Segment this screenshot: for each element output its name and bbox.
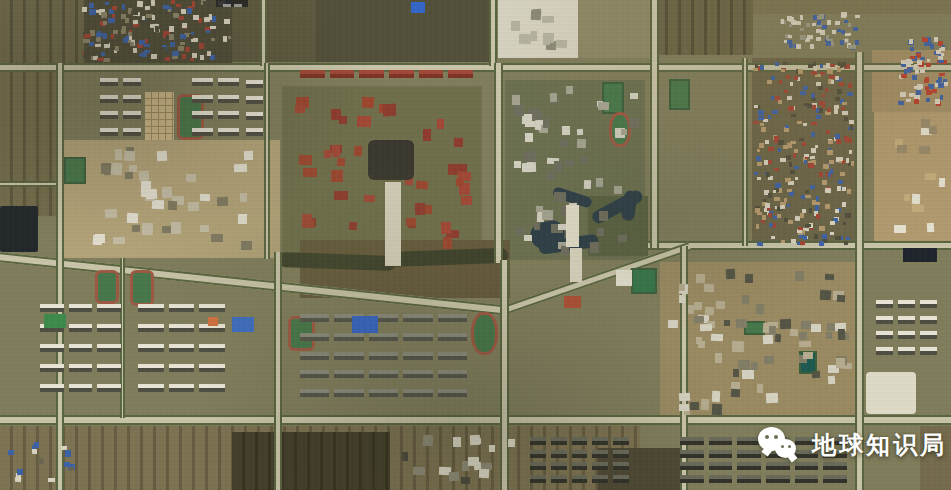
village-right-building: [773, 190, 776, 193]
village-right-building: [846, 158, 850, 163]
red-roof-campus-center-building: [303, 168, 317, 177]
campus-buildings-mid-left-building: [124, 150, 135, 161]
village-right-building: [805, 224, 811, 227]
village-right-building: [761, 220, 765, 223]
village-right-building: [839, 157, 843, 161]
village-right-building: [815, 206, 820, 211]
apartments-bottom-dark-b-slab: [737, 475, 761, 483]
buildings-bottom-center-building: [453, 437, 461, 447]
apartments-bottom-center-slab: [438, 333, 467, 341]
apartments-bottom-center-slab: [300, 370, 329, 378]
apartments-bottom-dark-a-slab: [592, 450, 608, 458]
village-top-left-building: [176, 4, 181, 7]
apartments-bottom-dark-a-slab: [613, 475, 629, 483]
campus-buildings-right-building: [795, 271, 804, 281]
apartments-bottom-left-a-slab: [97, 384, 121, 392]
village-right-building: [756, 156, 761, 161]
village-top-right-corner-building: [939, 60, 945, 63]
village-right-building: [767, 213, 771, 217]
village-right-building: [841, 201, 845, 206]
campus-buildings-right-building: [731, 388, 740, 397]
red-roof-campus-center-building: [364, 195, 376, 203]
apartments-bottom-dark-b-slab: [709, 437, 733, 445]
apartments-bottom-dark-a-slab: [592, 437, 608, 445]
village-top-right-corner-building: [910, 47, 914, 51]
apartments-bottom-dark-a-slab: [613, 450, 629, 458]
red-roof-campus-center-building: [437, 119, 445, 129]
village-top-left-building: [223, 36, 227, 42]
red-roof-campus-center-building: [416, 181, 428, 190]
red-roof-campus-center-building: [456, 177, 465, 186]
apartments-right-edge-slab: [898, 331, 915, 339]
campus-buildings-mid-left-building: [200, 193, 210, 201]
village-right-building: [774, 168, 779, 171]
campus-buildings-right-building: [735, 319, 746, 329]
apartments-bottom-dark-a-slab: [613, 437, 629, 445]
red-roof-campus-center-building: [422, 129, 430, 141]
apartments-top-left-a-slab: [123, 95, 141, 103]
campus-buildings-right-building: [757, 383, 763, 392]
village-right-building: [786, 96, 791, 100]
apartments-bottom-dark-a-slab: [551, 450, 567, 458]
village-top-right-blue-building: [848, 23, 852, 27]
apartments-top-left-a-slab: [100, 111, 118, 119]
campus-buildings-mid-left-building: [241, 241, 253, 250]
apartments-right-edge-slab: [876, 316, 893, 324]
village-top-left-building: [155, 26, 159, 32]
village-top-left-building: [103, 21, 107, 25]
campus-buildings-right-building: [811, 324, 821, 332]
village-right-building: [774, 136, 780, 141]
village-right-building: [844, 136, 849, 141]
campus-buildings-mid-left-building: [151, 200, 163, 209]
apartments-right-edge-slab: [920, 300, 937, 308]
red-roof-campus-center-building: [337, 158, 346, 167]
village-top-left-building: [224, 19, 230, 24]
apartments-bottom-left-b-slab: [199, 364, 225, 372]
village-top-left-building: [192, 53, 197, 58]
village-right-building: [822, 234, 827, 239]
red-roof-campus-center-building: [361, 96, 374, 107]
village-right-building: [787, 204, 790, 207]
village-top-left-building: [122, 26, 126, 31]
apartments-right-edge-slab: [920, 331, 937, 339]
red-building-center: [564, 296, 581, 308]
farm-houses-bottom-left-building: [38, 458, 44, 464]
village-top-left-building: [95, 44, 101, 47]
village-top-right-corner-building: [920, 69, 925, 73]
village-right-building: [757, 162, 762, 166]
village-right-building: [754, 172, 758, 175]
village-right-building: [801, 209, 805, 213]
village-top-right-corner-building: [930, 44, 934, 49]
village-top-left-building: [82, 7, 87, 12]
village-right-building: [840, 63, 843, 68]
big-white-building-right: [866, 372, 916, 414]
apartments-bottom-left-a-slab: [40, 304, 64, 312]
village-right-building: [847, 189, 851, 194]
red-roof-campus-center-building: [443, 237, 452, 249]
village-top-right-blue-building: [832, 30, 836, 34]
village-right-building: [784, 198, 787, 203]
campus-buildings-mid-left-building: [188, 202, 200, 212]
gray-campus-center-right-building: [524, 151, 536, 162]
village-right-building: [836, 139, 841, 144]
construction-buildings-right-edge-building: [911, 194, 919, 204]
green-roof-building: [44, 314, 66, 328]
village-top-right-blue-building: [812, 23, 816, 27]
red-roof-campus-center-building: [357, 116, 371, 128]
apartments-bottom-left-a-slab: [69, 364, 93, 372]
blue-roof-pair: [232, 317, 254, 332]
village-top-right-blue-building: [781, 19, 785, 24]
village-right-building: [808, 208, 811, 213]
gray-campus-center-right-building: [597, 228, 604, 236]
axis-walk-white: [570, 248, 582, 282]
red-roof-campus-center-building: [448, 164, 459, 175]
apartments-bottom-center-slab: [300, 314, 329, 322]
village-right-building: [811, 148, 816, 153]
satellite-map-viewport[interactable]: 地球知识局: [0, 0, 951, 490]
apartments-bottom-left-a-slab: [69, 384, 93, 392]
village-top-right-corner-building: [916, 90, 921, 95]
apartments-right-edge-slab: [876, 331, 893, 339]
village-top-right-blue-building: [788, 35, 792, 39]
village-right-building: [757, 212, 762, 215]
apartments-right-edge-slab: [920, 347, 937, 355]
village-top-right-blue-building: [841, 13, 846, 18]
village-top-left-building: [179, 16, 184, 20]
campus-buildings-mid-left-building: [186, 173, 196, 182]
apartments-bottom-center-slab: [438, 314, 467, 322]
gray-campus-center-right-building: [584, 180, 591, 189]
village-top-right-corner-building: [936, 50, 941, 55]
village-right-building: [761, 127, 766, 132]
gray-campus-center-right-building: [533, 112, 541, 120]
construction-buildings-right-edge-building: [913, 204, 924, 212]
campus-buildings-right-building: [836, 358, 845, 368]
village-top-left-building: [111, 5, 116, 9]
gray-campus-center-right-building: [630, 93, 638, 99]
apartments-bottom-center-slab: [369, 389, 398, 397]
campus-buildings-right-building: [695, 274, 704, 284]
village-top-left-building: [199, 43, 204, 49]
gray-campus-center-right-building: [562, 126, 571, 135]
road-v-3-mid: [494, 63, 503, 263]
campus-buildings-right-building: [755, 304, 763, 315]
village-right-building: [783, 145, 788, 149]
village-right-building: [791, 239, 796, 243]
gray-campus-center-right-building: [542, 210, 554, 221]
village-right-building: [813, 62, 816, 66]
campus-buildings-right-building: [799, 341, 811, 348]
campus-buildings-right-building: [679, 393, 690, 401]
red-roof-campus-center-building: [382, 103, 395, 116]
village-top-left-building: [211, 37, 215, 40]
village-top-right-corner-building: [910, 56, 915, 59]
village-right-building: [825, 88, 828, 92]
village-top-right-blue-building: [789, 23, 792, 26]
apartments-bottom-center-slab: [403, 370, 432, 378]
apartments-bottom-dark-a-slab: [530, 450, 546, 458]
village-top-right-blue-building: [822, 25, 828, 29]
village-right-building: [837, 186, 841, 191]
village-right-building: [803, 236, 807, 241]
gray-campus-center-right-building: [561, 246, 570, 255]
village-right-building: [798, 227, 803, 230]
village-right-building: [791, 114, 796, 118]
apartments-bottom-left-b-slab: [199, 384, 225, 392]
white-building-center: [616, 270, 632, 286]
apartments-bottom-left-a-slab: [97, 344, 121, 352]
red-roof-campus-center-building: [295, 105, 305, 113]
village-right-building: [816, 214, 820, 219]
village-top-left-building: [180, 42, 185, 45]
campus-buildings-mid-left-building: [105, 209, 117, 219]
village-top-right-blue-building: [795, 21, 801, 26]
village-top-left-building: [133, 9, 138, 15]
red-roof-campus-center-building: [324, 150, 331, 158]
satellite-imagery: [0, 0, 951, 490]
campus-buildings-right-building: [704, 284, 714, 293]
label-glyph-fragment: [234, 4, 242, 7]
village-right-building: [793, 76, 797, 80]
construction-buildings-right-edge-building: [920, 119, 930, 128]
campus-buildings-mid-left-building: [157, 151, 168, 162]
buildings-construction-top-building: [542, 16, 554, 24]
village-right-building: [783, 62, 788, 65]
apartments-bottom-left-a-slab: [40, 384, 64, 392]
campus-buildings-right-building: [742, 370, 754, 379]
village-top-left-building: [151, 54, 157, 59]
village-top-right-blue-building: [800, 35, 806, 40]
village-right-building: [758, 110, 764, 115]
village-top-right-corner-building: [909, 92, 915, 96]
village-right-building: [780, 204, 785, 208]
gray-campus-center-right-building: [554, 191, 566, 201]
village-right-building: [842, 102, 847, 106]
village-top-left-building: [89, 3, 94, 8]
village-top-left-building: [173, 13, 179, 18]
village-top-left-building: [121, 14, 126, 19]
village-top-left-building: [171, 0, 175, 4]
apartments-bottom-center-slab: [300, 389, 329, 397]
village-right-building: [837, 67, 841, 72]
campus-buildings-right-building: [715, 353, 722, 363]
village-right-building: [780, 158, 786, 162]
village-right-building: [770, 96, 774, 100]
campus-buildings-mid-left-building: [171, 222, 181, 234]
village-right-building: [753, 121, 759, 124]
gray-campus-center-right-building: [621, 129, 627, 135]
red-roof-campus-center-building: [334, 191, 348, 200]
village-right-building: [764, 160, 768, 165]
farm-houses-bottom-left-building: [64, 462, 70, 468]
village-top-left-building: [128, 8, 132, 11]
village-top-left-building: [96, 33, 103, 38]
village-right-building: [830, 64, 835, 67]
village-right-building: [822, 180, 827, 185]
gray-campus-center-right-building: [515, 228, 526, 235]
road-v-village-right: [742, 58, 748, 246]
village-top-left-building: [205, 2, 210, 8]
village-top-right-blue-building: [826, 35, 829, 40]
village-top-left-building: [169, 34, 174, 40]
gray-campus-center-right-building: [581, 157, 589, 163]
red-roof-row-top-center-slab: [389, 70, 414, 78]
village-right-building: [819, 241, 824, 246]
construction-buildings-right-edge-building: [897, 145, 907, 153]
village-right-building: [801, 195, 805, 199]
campus-buildings-mid-left-building: [124, 172, 133, 180]
village-right-building: [826, 130, 830, 134]
village-right-building: [827, 150, 833, 155]
campus-buildings-right-building: [679, 284, 685, 291]
village-top-right-corner-building: [939, 72, 945, 76]
village-right-building: [772, 110, 778, 114]
gray-campus-center-right-building: [521, 163, 530, 172]
farmland-left-edge: [0, 66, 56, 216]
farmland-top-right: [655, 0, 753, 55]
campus-buildings-right-building: [726, 268, 736, 278]
campus-buildings-right-building: [826, 332, 832, 340]
apartments-bottom-left-a-slab: [97, 364, 121, 372]
village-top-right-blue-building: [805, 23, 809, 27]
pitch-top-right: [669, 79, 690, 110]
apartments-bottom-center-slab: [403, 389, 432, 397]
apartments-bottom-dark-a-slab: [592, 462, 608, 470]
bubble-eye: [781, 445, 784, 448]
campus-buildings-right-building: [751, 361, 758, 370]
village-right-building: [778, 148, 781, 153]
campus-buildings-mid-left-building: [110, 163, 122, 175]
village-right-building: [837, 89, 842, 94]
campus-buildings-right-building: [820, 289, 831, 300]
apartments-bottom-dark-b-slab: [680, 462, 704, 470]
buildings-bottom-center-building: [413, 467, 425, 475]
gray-campus-center-right-building: [577, 138, 587, 148]
buildings-construction-top-building: [531, 31, 538, 41]
buildings-bottom-center-building: [489, 445, 495, 452]
village-top-right-corner-building: [912, 75, 917, 80]
village-right-building: [785, 125, 789, 129]
village-top-right-blue-building: [826, 41, 831, 46]
village-top-left-building: [97, 58, 104, 62]
village-top-left-building: [139, 40, 145, 45]
village-right-building: [787, 189, 792, 192]
village-right-building: [851, 161, 854, 166]
farm-houses-bottom-left-building: [17, 469, 23, 475]
village-right-building: [810, 185, 815, 190]
main-hall-dark-center: [368, 140, 414, 180]
campus-buildings-right-building: [779, 319, 790, 329]
village-right-building: [834, 105, 839, 109]
village-top-right-blue-building: [839, 40, 843, 45]
village-right-building: [799, 138, 804, 141]
dark-solar-panels-right: [903, 248, 937, 262]
village-top-left-building: [96, 37, 102, 42]
campus-buildings-right-building: [711, 334, 723, 341]
red-roof-row-top-center-slab: [448, 70, 473, 78]
farm-houses-bottom-left-building: [32, 449, 37, 454]
village-top-right-blue-building: [827, 20, 831, 25]
campus-buildings-right-building: [764, 356, 774, 365]
village-top-left-building: [108, 18, 115, 24]
village-top-right-corner-building: [935, 99, 940, 104]
buildings-bottom-center-building: [461, 477, 470, 484]
village-top-left-building: [84, 50, 89, 55]
village-top-left-building: [137, 1, 144, 7]
village-right-building: [830, 221, 835, 225]
gray-campus-center-right-building: [550, 93, 557, 102]
village-top-left-building: [228, 36, 231, 39]
campus-buildings-mid-left-building: [244, 151, 254, 161]
village-top-right-blue-building: [845, 33, 851, 37]
buildings-bottom-center-building: [402, 452, 408, 461]
village-right-building: [822, 104, 825, 108]
apartments-bottom-left-b-slab: [199, 344, 225, 352]
apartments-right-edge-slab: [876, 347, 893, 355]
campus-buildings-right-building: [837, 294, 846, 301]
village-top-right-blue-building: [816, 29, 822, 33]
village-right-building: [816, 196, 819, 201]
pitch-bottom-left-2: [130, 270, 154, 306]
village-right-building: [835, 76, 839, 80]
village-right-building: [790, 141, 796, 144]
construction-buildings-right-edge-building: [924, 173, 936, 180]
chat-bubble-small: [775, 439, 796, 458]
village-right-building: [834, 109, 838, 114]
campus-buildings-mid-left-building: [115, 149, 123, 160]
apartments-bottom-dark-a-slab: [530, 437, 546, 445]
campus-buildings-right-building: [696, 337, 702, 344]
village-right-building: [760, 123, 764, 127]
village-top-left-building: [181, 23, 186, 28]
apartments-bottom-dark-b-slab: [766, 475, 790, 483]
gray-campus-center-right-building: [514, 161, 521, 168]
village-top-left-building: [83, 34, 90, 38]
village-top-left-building: [83, 55, 87, 58]
campus-buildings-right-building: [812, 371, 820, 378]
pitch-mid-left: [64, 157, 86, 184]
buildings-construction-top-building: [556, 40, 568, 49]
village-top-right-blue-building: [800, 15, 803, 20]
village-top-left-building: [103, 33, 107, 39]
red-roof-campus-center-building: [332, 145, 340, 158]
village-top-left-building: [152, 15, 155, 20]
gray-campus-center-right-building: [512, 95, 520, 105]
village-top-left-building: [168, 8, 171, 11]
buildings-bottom-center-building: [423, 435, 433, 446]
farm-houses-bottom-left-building: [64, 450, 70, 457]
village-right-building: [753, 68, 758, 71]
village-right-building: [760, 65, 764, 70]
village-top-right-blue-building: [845, 39, 849, 42]
village-right-building: [798, 69, 803, 74]
village-top-right-blue-building: [800, 28, 804, 31]
village-right-building: [838, 180, 843, 184]
village-right-building: [845, 213, 851, 219]
apartments-bottom-dark-a-slab: [530, 475, 546, 483]
apartments-bottom-center-slab: [369, 352, 398, 360]
construction-buildings-right-edge-building: [939, 178, 945, 187]
apartments-bottom-dark-a-slab: [613, 462, 629, 470]
village-top-left-building: [219, 49, 223, 54]
gray-campus-center-right-building: [590, 242, 600, 253]
village-right-building: [828, 172, 831, 177]
buildings-construction-top-building: [543, 37, 550, 45]
village-top-left-building: [185, 47, 190, 52]
